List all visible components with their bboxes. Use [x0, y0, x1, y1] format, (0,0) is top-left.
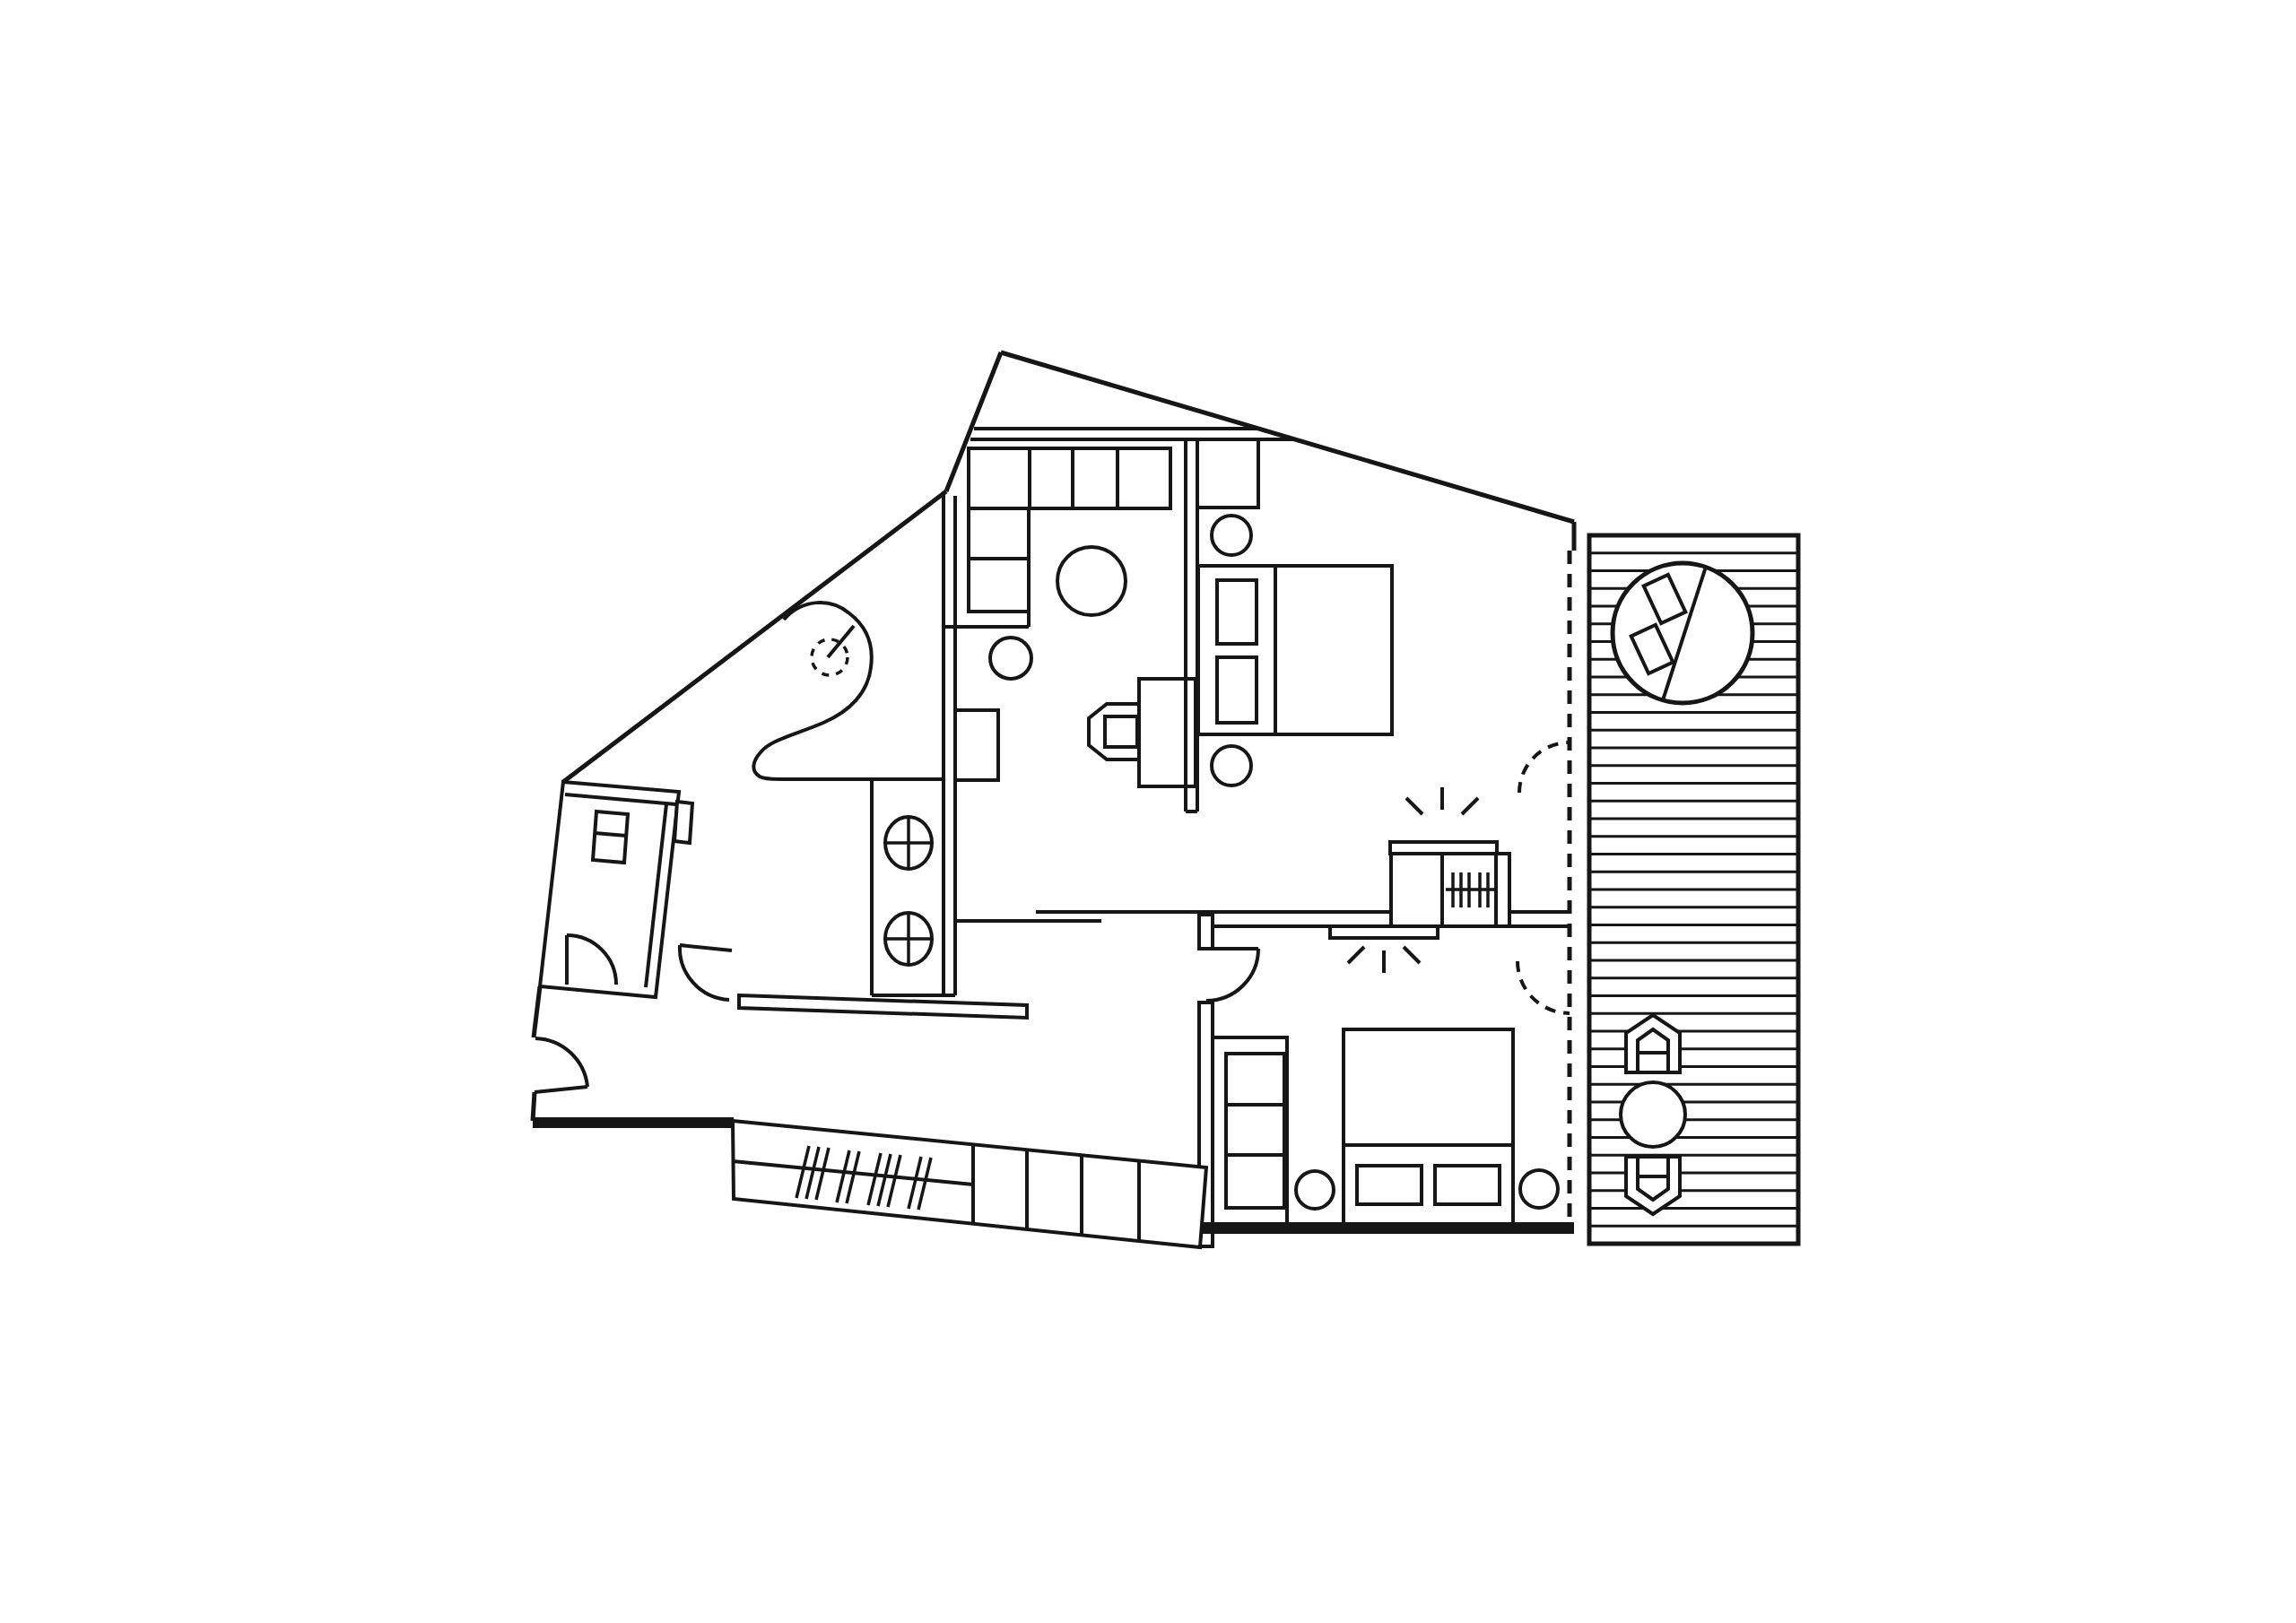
dining-table [1613, 563, 1752, 703]
floor-plan-drawing [0, 0, 2296, 1623]
terrace [1589, 535, 1798, 1244]
south-wall-west [533, 1117, 734, 1128]
background-sheet [0, 0, 2296, 1623]
side-table [1621, 1082, 1685, 1147]
floor-plan-page [0, 0, 2296, 1623]
outer-structure [0, 0, 2296, 1623]
entry-pillar [674, 802, 692, 843]
west-wall-lower [533, 1092, 535, 1121]
hearth-slab [1330, 926, 1438, 938]
bedroom2-west-wall-upper [1199, 915, 1213, 949]
